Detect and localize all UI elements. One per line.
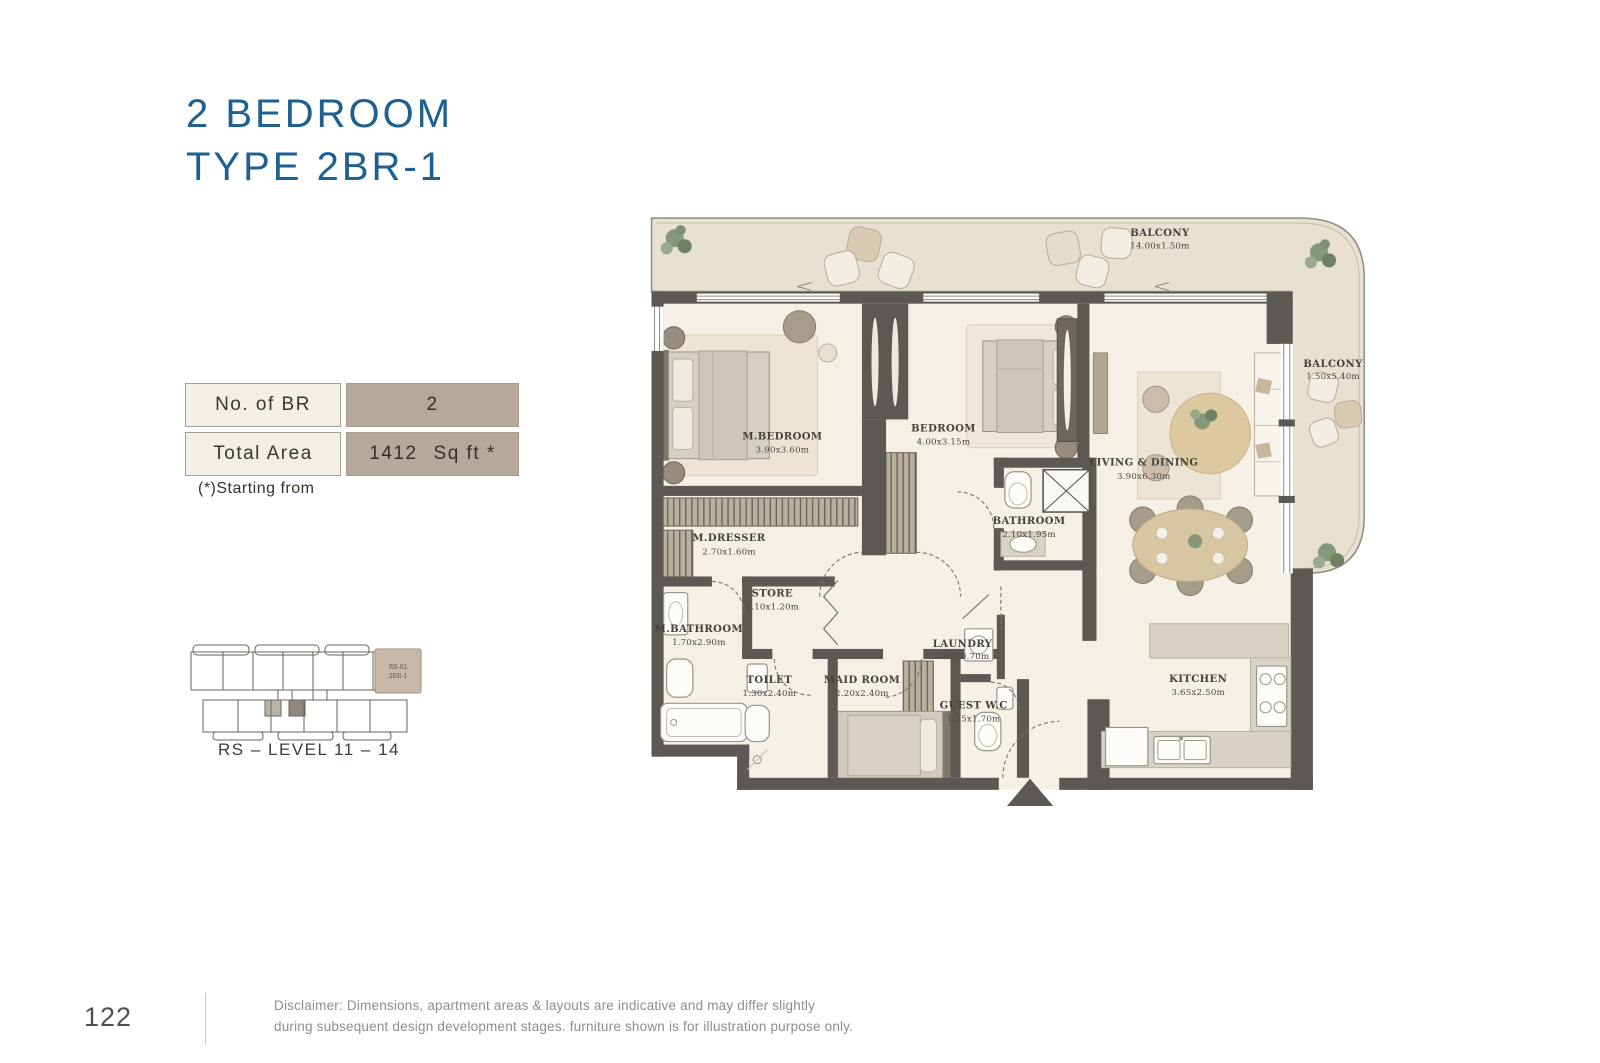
bedrooms-value-number: 2 bbox=[426, 394, 438, 416]
table-row-area: Total Area 1412 Sq ft * bbox=[185, 432, 519, 476]
key-plan: RS-02 2BR-1 bbox=[183, 638, 435, 746]
area-value-number: 1412 bbox=[369, 443, 417, 465]
room-label-store: STORE bbox=[752, 589, 794, 600]
svg-text:3.90x6.30m: 3.90x6.30m bbox=[1117, 472, 1171, 482]
key-plan-unit-code: RS-02 bbox=[389, 664, 408, 671]
bed-double bbox=[659, 350, 770, 461]
svg-text:14.00x1.50m: 14.00x1.50m bbox=[1130, 241, 1189, 251]
key-plan-unit-type: 2BR-1 bbox=[389, 673, 408, 680]
room-label-master-bedroom: M.BEDROOM bbox=[742, 432, 822, 443]
side-table bbox=[819, 344, 837, 362]
page-number: 122 bbox=[84, 1002, 132, 1033]
dresser-unit bbox=[659, 498, 858, 526]
svg-text:1.30x2.40m: 1.30x2.40m bbox=[743, 689, 797, 699]
disclaimer: Disclaimer: Dimensions, apartment areas … bbox=[274, 996, 853, 1038]
tv-console bbox=[1093, 353, 1107, 434]
room-label-master-bathroom: M.BATHROOM bbox=[655, 624, 743, 635]
area-value: 1412 Sq ft * bbox=[346, 432, 519, 476]
disclaimer-line1: Disclaimer: Dimensions, apartment areas … bbox=[274, 996, 853, 1017]
toilet bbox=[745, 705, 769, 741]
hob bbox=[1257, 666, 1287, 726]
area-value-unit: Sq ft * bbox=[434, 443, 496, 465]
fridge bbox=[1106, 727, 1148, 765]
room-label-balcony-right: BALCONY bbox=[1303, 359, 1363, 370]
footer-divider bbox=[205, 993, 206, 1045]
corridor-wardrobe bbox=[886, 453, 916, 554]
page-title-line2: TYPE 2BR-1 bbox=[186, 141, 453, 194]
room-label-guest-wc: GUEST W.C bbox=[940, 700, 1008, 711]
svg-text:1.00x0.70m: 1.00x0.70m bbox=[936, 652, 990, 662]
room-label-toilet: TOILET bbox=[747, 675, 793, 686]
page-title-line1: 2 BEDROOM bbox=[186, 88, 453, 141]
area-label: Total Area bbox=[185, 432, 341, 476]
service-shaft bbox=[1043, 470, 1089, 512]
room-label-bathroom: BATHROOM bbox=[993, 516, 1066, 527]
table-row-bedrooms: No. of BR 2 bbox=[185, 383, 519, 427]
room-label-maid-room: MAID ROOM bbox=[824, 675, 900, 686]
svg-text:1.50x5.40m: 1.50x5.40m bbox=[1306, 372, 1360, 382]
disclaimer-line2: during subsequent design development sta… bbox=[274, 1017, 853, 1038]
room-label-bedroom: BEDROOM bbox=[911, 423, 976, 434]
page-title: 2 BEDROOM TYPE 2BR-1 bbox=[186, 88, 453, 194]
armchair bbox=[783, 311, 815, 343]
svg-text:1.10x1.20m: 1.10x1.20m bbox=[746, 603, 800, 613]
svg-text:1.25x1.70m: 1.25x1.70m bbox=[947, 714, 1001, 724]
room-label-living-dining: LIVING & DINING bbox=[1089, 458, 1198, 469]
kitchen-counter bbox=[1150, 624, 1289, 658]
svg-text:2.10x1.95m: 2.10x1.95m bbox=[1002, 530, 1056, 540]
svg-text:2.70x1.60m: 2.70x1.60m bbox=[702, 547, 756, 557]
master-bedroom-furniture bbox=[659, 311, 837, 484]
svg-text:1.70x2.90m: 1.70x2.90m bbox=[672, 638, 726, 648]
room-label-kitchen: KITCHEN bbox=[1169, 674, 1227, 685]
centerpiece-plant bbox=[1188, 534, 1202, 548]
toilet bbox=[667, 659, 693, 697]
room-label-dresser: M.DRESSER bbox=[692, 533, 766, 544]
bathtub bbox=[661, 703, 748, 741]
svg-text:4.00x3.15m: 4.00x3.15m bbox=[917, 438, 971, 448]
starting-from-note: (*)Starting from bbox=[198, 480, 314, 498]
dining-table bbox=[1130, 496, 1253, 596]
wardrobe bbox=[659, 530, 693, 578]
pillow bbox=[920, 719, 936, 771]
svg-text:3.90x3.60m: 3.90x3.60m bbox=[756, 446, 810, 456]
svg-text:3.65x2.50m: 3.65x2.50m bbox=[1171, 688, 1225, 698]
floor-plan: BALCONY 14.00x1.50m BALCONY 1.50x5.40m M… bbox=[646, 206, 1402, 810]
nightstand bbox=[663, 462, 685, 484]
wardrobe bbox=[903, 661, 933, 719]
nightstand bbox=[663, 327, 685, 349]
key-plan-highlighted-unit: RS-02 2BR-1 bbox=[375, 649, 421, 693]
room-label-balcony-top: BALCONY bbox=[1130, 228, 1190, 239]
bedrooms-label: No. of BR bbox=[185, 383, 341, 427]
bedrooms-value: 2 bbox=[346, 383, 519, 427]
svg-text:2.20x2.40m: 2.20x2.40m bbox=[835, 689, 889, 699]
toilet bbox=[1005, 472, 1031, 508]
armchair bbox=[1143, 386, 1169, 412]
room-label-laundry: LAUNDRY bbox=[933, 639, 993, 650]
unit-info-table: No. of BR 2 Total Area 1412 Sq ft * bbox=[185, 383, 519, 481]
brochure-page: { "page": { "title_line1": "2 BEDROOM", … bbox=[0, 0, 1600, 1063]
key-plan-caption: RS – LEVEL 11 – 14 bbox=[183, 740, 435, 760]
